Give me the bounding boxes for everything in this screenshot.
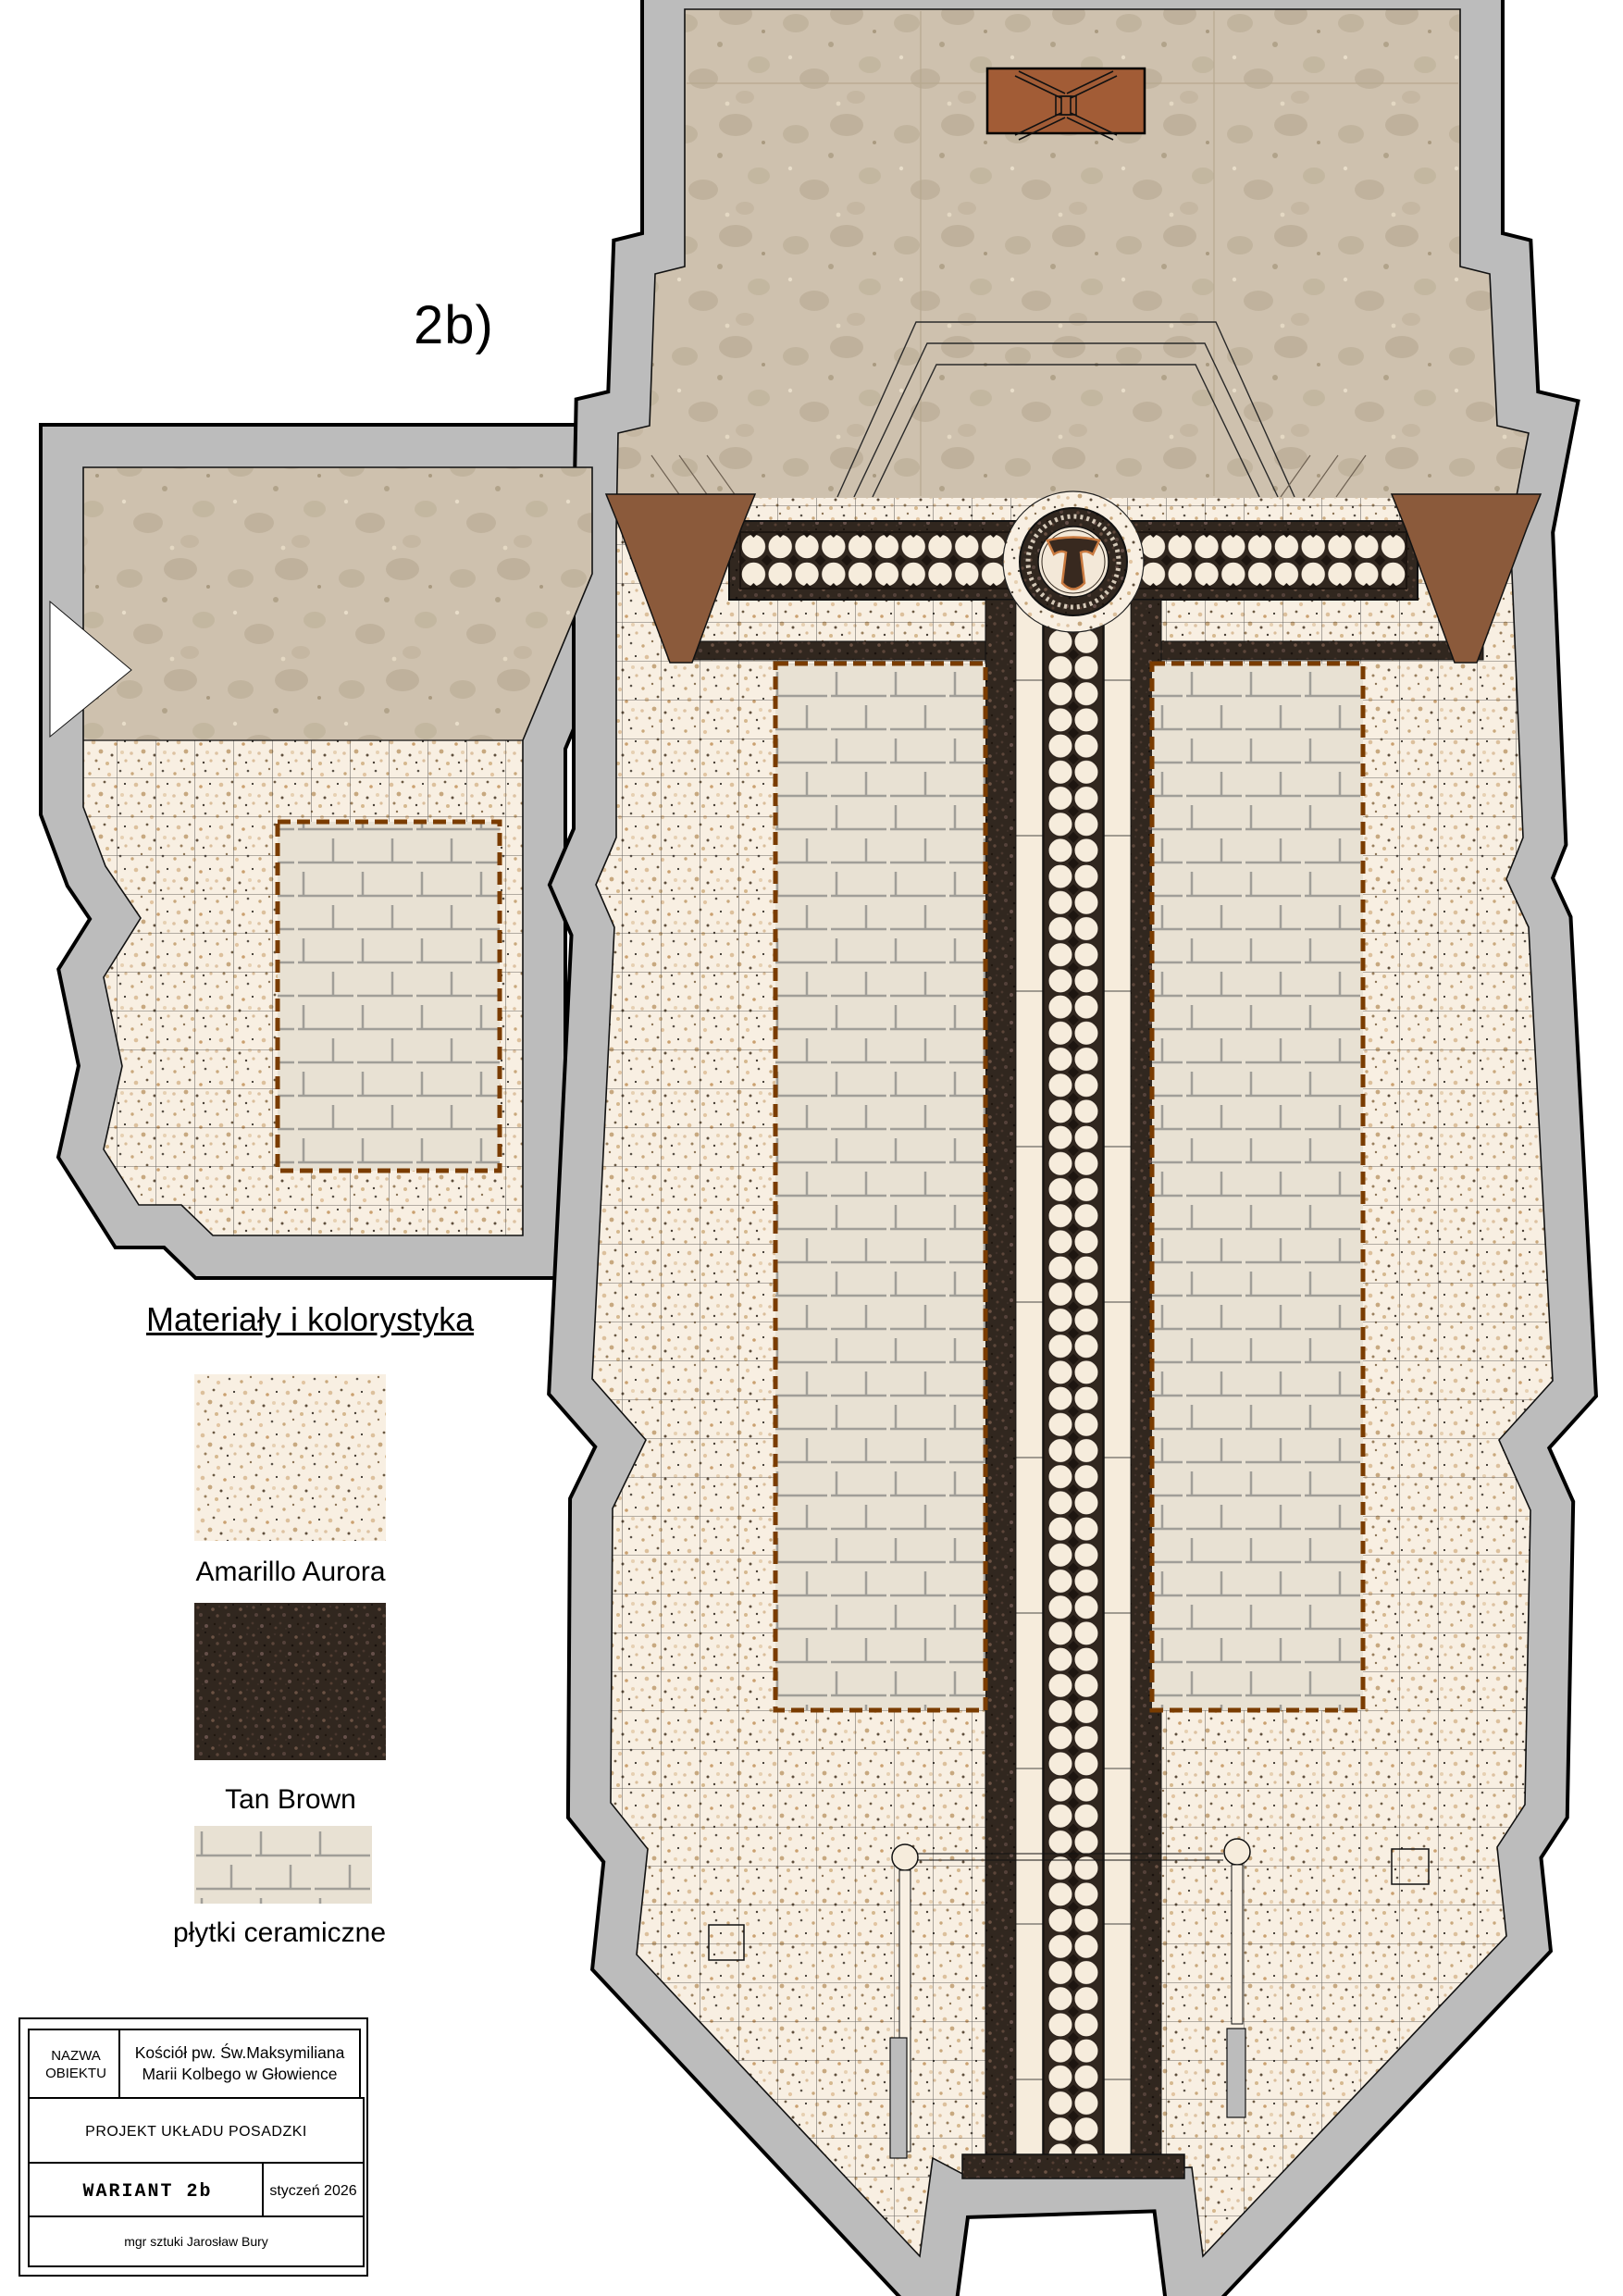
altar [987,68,1145,140]
aisle-end-cap [962,2154,1184,2178]
legend-label-ceramic: płytki ceramiczne [150,1917,409,1949]
ceramic-tiles-swatch [194,1826,372,1904]
band-emblem [1003,491,1144,632]
variant-label: 2b) [414,294,494,356]
granite-light-swatch [194,1374,386,1541]
granite-dark-swatch [194,1603,386,1760]
title-block-author: mgr sztuki Jarosław Bury [28,2215,365,2267]
right-column-stand [1232,1865,1243,2024]
left-wall-spur [890,2038,907,2158]
title-block-variant: WARIANT 2b [28,2162,267,2221]
title-block-object-name: Kościół pw. Św.Maksymiliana Marii Kolbeg… [118,2029,361,2099]
right-wall-spur [1227,2029,1245,2117]
right-pews-area [1152,664,1363,1710]
title-block: NAZWA OBIEKTU Kościół pw. Św.Maksymilian… [19,2017,368,2277]
left-column-circle [892,1844,918,1870]
title-block-date: styczeń 2026 [262,2162,365,2221]
legend-label-tan-brown: Tan Brown [161,1784,420,1816]
floor-plan-sheet: 2b) Materiały i kolorystyka Amarillo Aur… [0,0,1623,2296]
left-pews-area [775,664,985,1710]
title-block-object-label: NAZWA OBIEKTU [28,2029,124,2103]
church-floor-plan-drawing [0,0,1623,2296]
legend-label-amarillo: Amarillo Aurora [161,1557,420,1588]
chapel-ceramic-area [278,822,500,1171]
legend-title: Materiały i kolorystyka [146,1300,474,1339]
right-column-circle [1224,1839,1250,1865]
title-block-project-title: PROJEKT UKŁADU POSADZKI [28,2097,365,2167]
